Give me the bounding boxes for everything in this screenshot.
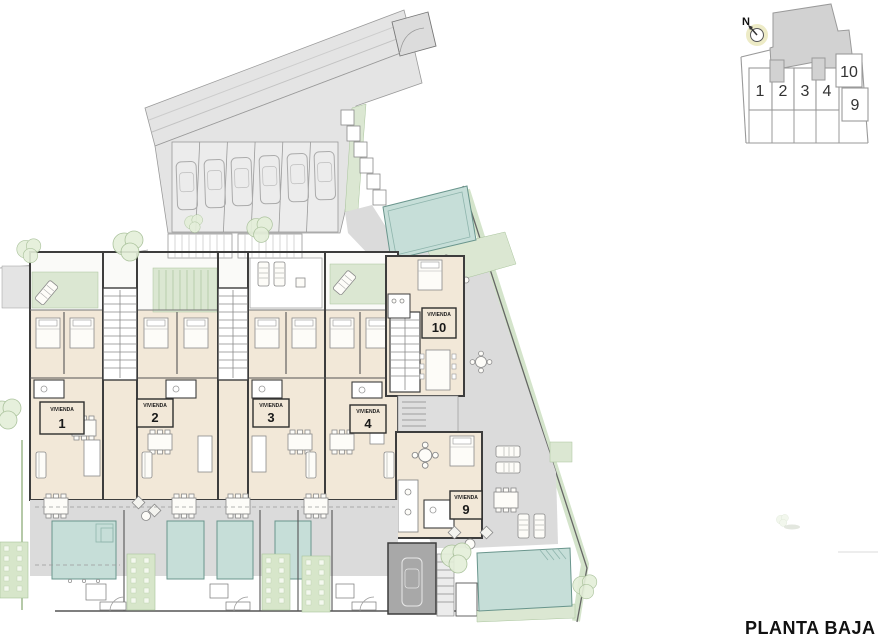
- sofa-icon: [384, 452, 394, 478]
- smudge: [784, 525, 800, 530]
- unit-label-vivienda-1: VIVIENDA 1: [40, 402, 84, 434]
- kitchen-icon: [398, 480, 418, 532]
- main-building: [2, 234, 398, 500]
- key-plan: N 1 2 3 4: [741, 4, 868, 143]
- plunge-pool: [52, 521, 116, 579]
- svg-text:VIVIENDA: VIVIENDA: [454, 495, 478, 501]
- kitchen-icon: [388, 294, 410, 318]
- lounger-icon: [534, 514, 545, 538]
- svg-text:VIVIENDA: VIVIENDA: [143, 403, 167, 409]
- planter-strip: [262, 554, 290, 610]
- terrace-unit2: [153, 268, 217, 312]
- unit-label-vivienda-9: VIVIENDA 9: [450, 491, 482, 519]
- keyplan-cell-3: 3: [801, 83, 810, 100]
- entry-hall: [398, 396, 458, 432]
- planter-strip: [127, 554, 155, 610]
- keyplan-cell-2: 2: [779, 83, 788, 100]
- floor-plan-drawing: VIVIENDA 1 VIVIENDA 2 VIVIENDA 3 VIVIEND…: [0, 0, 878, 640]
- sofa-icon: [36, 452, 46, 478]
- keyplan-cell-10: 10: [840, 64, 858, 81]
- lounger-icon: [518, 514, 529, 538]
- tree-icon: [776, 514, 788, 526]
- svg-text:VIVIENDA: VIVIENDA: [259, 403, 283, 409]
- svg-text:VIVIENDA: VIVIENDA: [427, 312, 451, 318]
- bed-icon: [330, 318, 354, 348]
- unit-label-vivienda-10: VIVIENDA 10: [422, 308, 456, 338]
- svg-text:9: 9: [462, 502, 469, 517]
- stair-core: [103, 288, 137, 380]
- dining-table-icon: [148, 430, 172, 454]
- planter-strip: [0, 542, 28, 598]
- bed-icon: [144, 318, 168, 348]
- planter-box: [550, 442, 572, 462]
- keyplan-cell-1: 1: [756, 83, 765, 100]
- bed-icon: [36, 318, 60, 348]
- svg-text:VIVIENDA: VIVIENDA: [356, 409, 380, 415]
- floor-plan-sheet: VIVIENDA 1 VIVIENDA 2 VIVIENDA 3 VIVIEND…: [0, 0, 878, 640]
- stair-core: [218, 288, 248, 380]
- dining-table-icon: [288, 430, 312, 454]
- plunge-pool: [217, 521, 253, 579]
- unit-label-vivienda-4: VIVIENDA 4: [350, 405, 386, 433]
- tree-icon: [0, 399, 21, 429]
- svg-text:VIVIENDA: VIVIENDA: [50, 407, 74, 413]
- bed-icon: [255, 318, 279, 348]
- unit-label-vivienda-2: VIVIENDA 2: [137, 399, 173, 427]
- planter-strip: [302, 556, 330, 612]
- garden-table-icon: [44, 494, 68, 518]
- lounger-icon: [496, 446, 520, 457]
- bed-icon: [418, 260, 442, 290]
- lounger-icon: [258, 262, 269, 286]
- garage: [388, 543, 436, 614]
- keyplan-cell-9: 9: [851, 97, 860, 114]
- parking-area: [145, 10, 436, 233]
- bed-icon: [450, 436, 474, 466]
- north-label: N: [742, 16, 750, 28]
- plunge-pool: [167, 521, 204, 579]
- table-icon: [494, 488, 518, 512]
- unit-9: [396, 432, 482, 538]
- lounger-icon: [496, 462, 520, 473]
- svg-text:10: 10: [432, 320, 446, 335]
- svg-text:4: 4: [364, 416, 372, 431]
- bed-icon: [70, 318, 94, 348]
- sofa-icon: [142, 452, 152, 478]
- svg-text:2: 2: [151, 410, 158, 425]
- keyplan-cell-4: 4: [823, 83, 832, 100]
- svg-text:1: 1: [58, 416, 65, 431]
- garden-table-icon: [304, 494, 328, 518]
- garden-table-icon: [226, 494, 250, 518]
- bed-icon: [292, 318, 316, 348]
- pool-shed: [456, 583, 477, 616]
- garden-table-icon: [172, 494, 196, 518]
- sofa-icon: [306, 452, 316, 478]
- svg-text:3: 3: [267, 410, 274, 425]
- bed-icon: [184, 318, 208, 348]
- unit-label-vivienda-3: VIVIENDA 3: [253, 399, 289, 427]
- plan-title: PLANTA BAJA: [745, 618, 876, 638]
- lounger-icon: [274, 262, 285, 286]
